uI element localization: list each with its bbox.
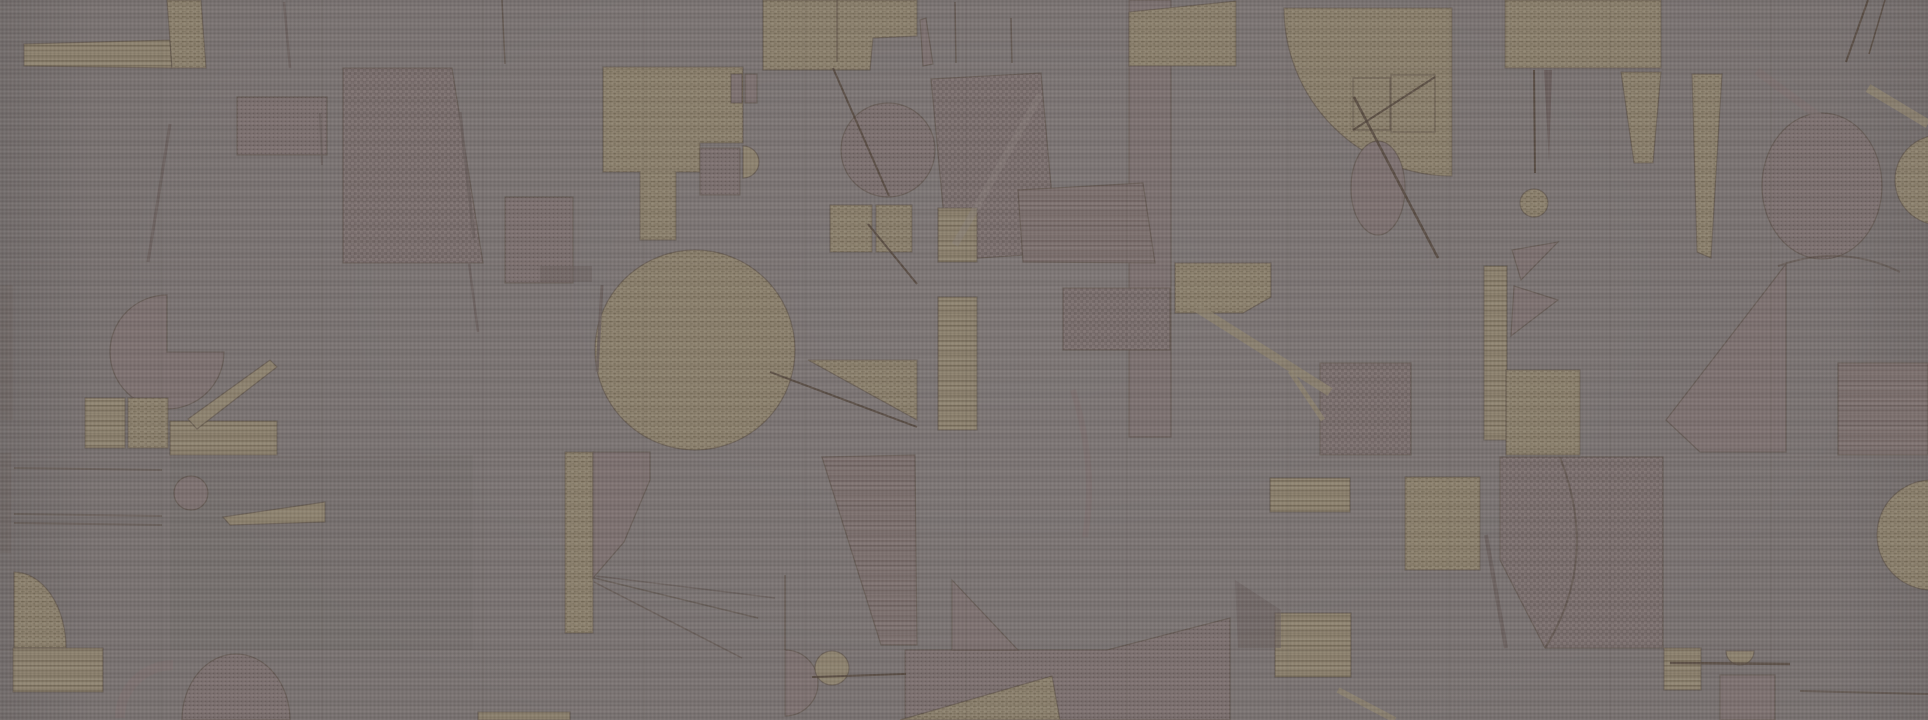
bar-olive-topleft	[24, 40, 172, 68]
arc-under-ellipse	[1778, 256, 1900, 272]
circle-small-tr	[1520, 189, 1548, 217]
edge-sliver-left-a	[0, 285, 13, 420]
pacman-mauve-left	[110, 295, 224, 409]
rect-olive-stripes-mr-b	[1275, 613, 1351, 677]
blob-mauve-tr	[1351, 141, 1405, 235]
rect-olive-stripe-b	[938, 297, 977, 430]
arc-ring-bl	[120, 665, 173, 718]
diag-bar-tr	[1757, 71, 1821, 118]
diag-bar-br	[1338, 690, 1395, 720]
hairline-top-mid	[502, 0, 505, 64]
hairline-tm-b	[1011, 18, 1012, 63]
column-khaki-bottom	[565, 452, 593, 633]
needle-corner-a	[1846, 0, 1868, 62]
stripe-column-tr	[1484, 266, 1507, 440]
block-mauve-cut	[593, 452, 650, 578]
shape-notched-right	[1500, 457, 1663, 648]
edge-sliver-left-b	[0, 453, 11, 553]
line-vertical-tr	[1534, 70, 1535, 173]
square-olive-tr-b	[1391, 75, 1435, 132]
diag-bar-tr2	[1868, 88, 1928, 124]
streak-bl-b	[14, 514, 162, 516]
rect-olive-row-a	[85, 398, 125, 448]
square-olive-tm-b	[876, 205, 912, 252]
wedge-needle-tr	[1544, 70, 1552, 164]
slab-tan-topright	[1505, 0, 1661, 68]
slab-mauve-big	[343, 68, 483, 263]
circle-olive-right-top	[1895, 135, 1928, 225]
shelf-line-br2	[1800, 691, 1928, 694]
needle-left-tl	[148, 124, 170, 262]
shape-layer	[0, 0, 1928, 720]
rect-mauve-topleft	[237, 97, 327, 155]
rect-mauve-right-edge	[1838, 363, 1928, 455]
quad-mauve-lean	[1018, 183, 1155, 263]
ray-bm-c	[596, 576, 775, 598]
bar-olive-bl	[170, 421, 277, 455]
slab-olive-top-mid	[763, 0, 917, 70]
bracket-left	[731, 74, 742, 103]
taper-column-tr	[1621, 72, 1661, 163]
wedge-tall-tr	[1692, 74, 1722, 258]
circle-olive-bm	[815, 651, 849, 685]
rect-mauve-column	[1063, 288, 1170, 350]
ray-bm-b	[594, 582, 742, 658]
needle-slab-tl	[469, 263, 478, 332]
tab-mauve-mid	[540, 266, 592, 282]
hairline-tm-a	[955, 2, 956, 63]
para-olive-right	[1175, 263, 1271, 313]
rect-olive-stripes-mr-a	[1270, 478, 1350, 512]
circle-mauve-bl	[174, 476, 208, 510]
square-olive-br-b	[1506, 370, 1580, 455]
rect-olive-row-b	[128, 398, 168, 448]
needle-corner-b	[1869, 0, 1885, 54]
rect-olive-bl	[13, 648, 103, 692]
rect-mauve-br	[1320, 363, 1411, 455]
arc-band-mid	[1073, 390, 1089, 537]
streak-bl-c	[14, 523, 162, 525]
triangle-mauve-bm	[952, 580, 1018, 650]
diag-bar-mr	[1197, 308, 1330, 392]
bar-tan-bottom	[478, 712, 570, 720]
triangle-mauve-mr	[1235, 580, 1281, 648]
rect-mauve-br-small	[1720, 675, 1775, 720]
zigzag-upper-tr	[1512, 242, 1558, 280]
shelf-line-br	[1670, 663, 1790, 664]
rect-olive-br-small	[1664, 648, 1701, 690]
square-olive-tm-a	[830, 205, 872, 252]
column-khaki-top	[167, 0, 206, 68]
textile-pattern	[0, 0, 1928, 720]
semicircle-mauve-bottomleft	[182, 654, 290, 720]
halfmoon-mauve-bm	[785, 650, 818, 716]
circle-olive-right-bottom	[1877, 480, 1928, 590]
needle-top-tl	[284, 2, 290, 68]
trapezoid-mauve-tall	[822, 455, 917, 645]
wedge-olive-mid	[1129, 1, 1236, 66]
bracket-right	[745, 74, 757, 103]
disc-olive-center	[595, 250, 795, 450]
tan-wedge-mid	[808, 360, 917, 420]
ellipse-mauve-right	[1762, 113, 1882, 259]
rect-mauve-inset	[700, 148, 740, 195]
square-olive-br-a	[1405, 477, 1480, 570]
sliver-tm	[920, 18, 933, 66]
quarter-ellipse-bl	[14, 572, 66, 648]
zigzag-lower-tr	[1511, 286, 1558, 336]
bump-semicircle	[743, 146, 759, 178]
pattern-scene	[0, 0, 1928, 720]
triangle-mauve-right	[1666, 264, 1786, 452]
ray-bm-a	[594, 578, 758, 618]
streak-bl-a	[14, 468, 162, 470]
